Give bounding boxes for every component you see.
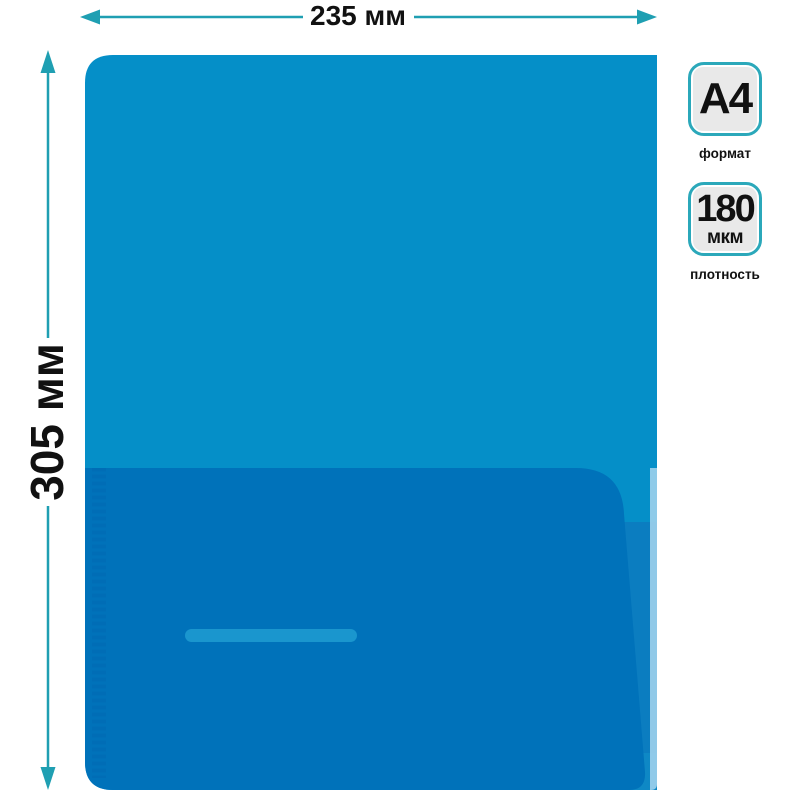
format-badge-value: A4 [699,78,751,120]
density-badge-caption: плотность [664,268,786,282]
arrow-right-icon [637,10,657,25]
folder-illustration [0,0,800,800]
width-dimension-label: 235 мм [300,2,416,30]
folder-edge-highlight [650,468,657,790]
product-dimension-diagram: 235 мм 305 мм A4 формат 180 мкм плотност… [0,0,800,800]
format-badge: A4 [688,62,762,136]
format-badge-inner: A4 [693,67,757,131]
pocket-seam-texture [92,468,106,778]
density-badge-inner: 180 мкм [693,187,757,251]
density-badge-unit: мкм [707,228,743,247]
arrow-up-icon [41,50,56,73]
arrow-left-icon [80,10,100,25]
format-badge-caption: формат [664,147,786,161]
height-dimension-label: 305 мм [24,343,70,501]
arrow-down-icon [41,767,56,790]
density-badge-value: 180 [696,191,753,227]
pocket-slot-shape [185,629,357,642]
density-badge: 180 мкм [688,182,762,256]
folder-pocket-shape [85,468,645,790]
